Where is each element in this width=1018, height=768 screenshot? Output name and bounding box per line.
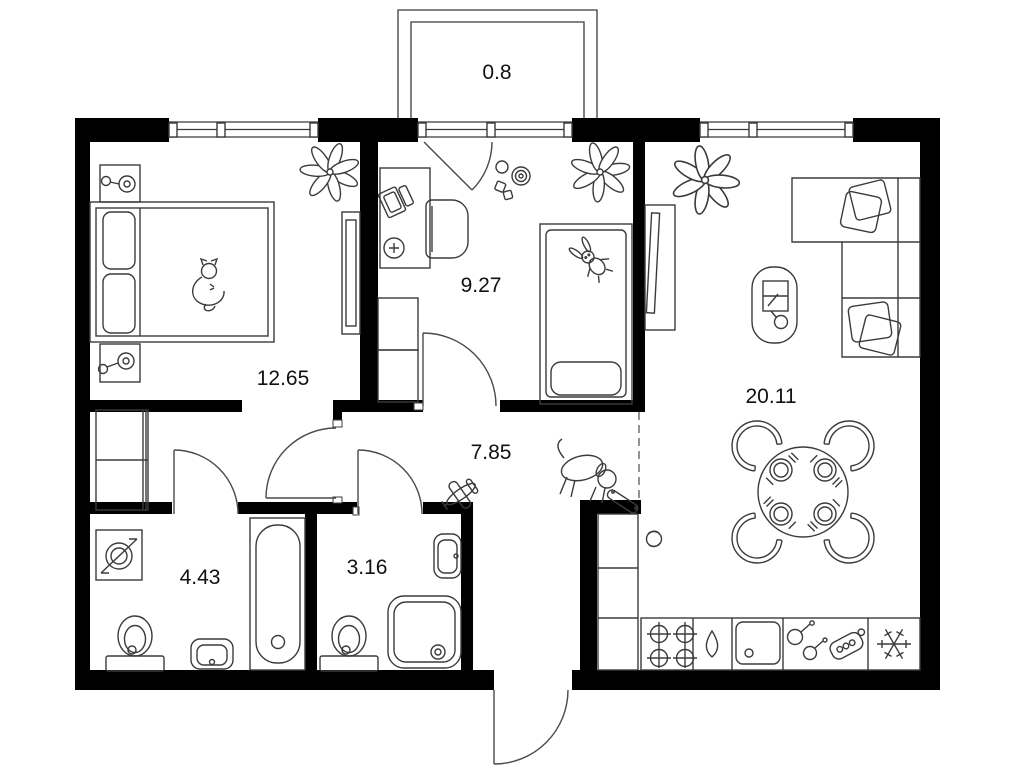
washing-machine-icon <box>96 530 142 580</box>
room-label-bathroom: 4.43 <box>180 566 221 589</box>
hallway-closet <box>96 410 148 510</box>
plant-icon-bedroom <box>293 135 367 209</box>
walls <box>75 118 940 690</box>
laptop-icon <box>378 182 415 218</box>
desk <box>380 168 430 268</box>
door-balcony <box>424 142 492 190</box>
place-settings-icon <box>764 453 843 532</box>
window-bedroom <box>169 122 318 137</box>
faucet-icon <box>706 631 717 657</box>
wash-basin-bathroom <box>191 639 233 669</box>
bedroom-wardrobe <box>342 212 360 334</box>
room-label-living-kitchen: 20.11 <box>746 385 797 408</box>
toilet-icon-shower-room <box>320 616 378 671</box>
door-bedroom <box>266 428 336 498</box>
tv-stand <box>645 205 675 330</box>
shower-tray <box>388 596 461 668</box>
floor-plan: 0.8 12.65 9.27 7.85 4.43 3.16 20.11 <box>0 0 1018 768</box>
wash-basin-shower-room <box>434 534 461 578</box>
door-bathroom <box>174 450 238 514</box>
room-label-balcony: 0.8 <box>482 61 511 84</box>
kids-wardrobe <box>378 298 418 402</box>
kitchen-sink-icon <box>736 622 780 664</box>
door-kids-room <box>423 333 496 406</box>
bunny-toy-icon <box>566 233 617 286</box>
pillow-icon-right <box>848 301 902 355</box>
nightstand-top <box>100 165 140 202</box>
door-shower-room <box>358 450 422 514</box>
sofa <box>792 178 920 357</box>
ball-icon <box>647 531 662 546</box>
desk-lamp-icon <box>384 238 404 258</box>
door-hinge-blocks <box>333 403 423 515</box>
dining-table <box>758 447 848 537</box>
toilet-icon-bathroom <box>106 616 164 671</box>
nightstand-bottom <box>99 344 141 382</box>
pillow-icon-top <box>840 179 892 233</box>
door-entrance <box>494 690 568 764</box>
cutting-board-icon <box>828 627 871 661</box>
fridge-snowflake-icon <box>877 629 911 658</box>
double-bed <box>90 202 274 342</box>
room-label-kids-room: 9.27 <box>461 274 502 297</box>
cat-icon <box>193 259 224 311</box>
stove-icon <box>647 622 697 668</box>
bathtub <box>250 518 305 670</box>
window-living <box>700 122 853 137</box>
room-label-shower-room: 3.16 <box>347 556 388 579</box>
plant-icon-living <box>656 131 754 229</box>
pots-icon <box>788 621 828 660</box>
room-label-hallway: 7.85 <box>471 441 512 464</box>
desk-chair <box>426 200 468 258</box>
dining-chairs <box>732 421 874 563</box>
coffee-table <box>752 267 797 343</box>
plant-icon-kids <box>561 133 639 210</box>
kitchen-tall-cabinet <box>598 514 638 670</box>
toys-icon <box>494 161 530 200</box>
room-label-bedroom: 12.65 <box>257 367 310 390</box>
balcony-glazing <box>418 122 572 137</box>
